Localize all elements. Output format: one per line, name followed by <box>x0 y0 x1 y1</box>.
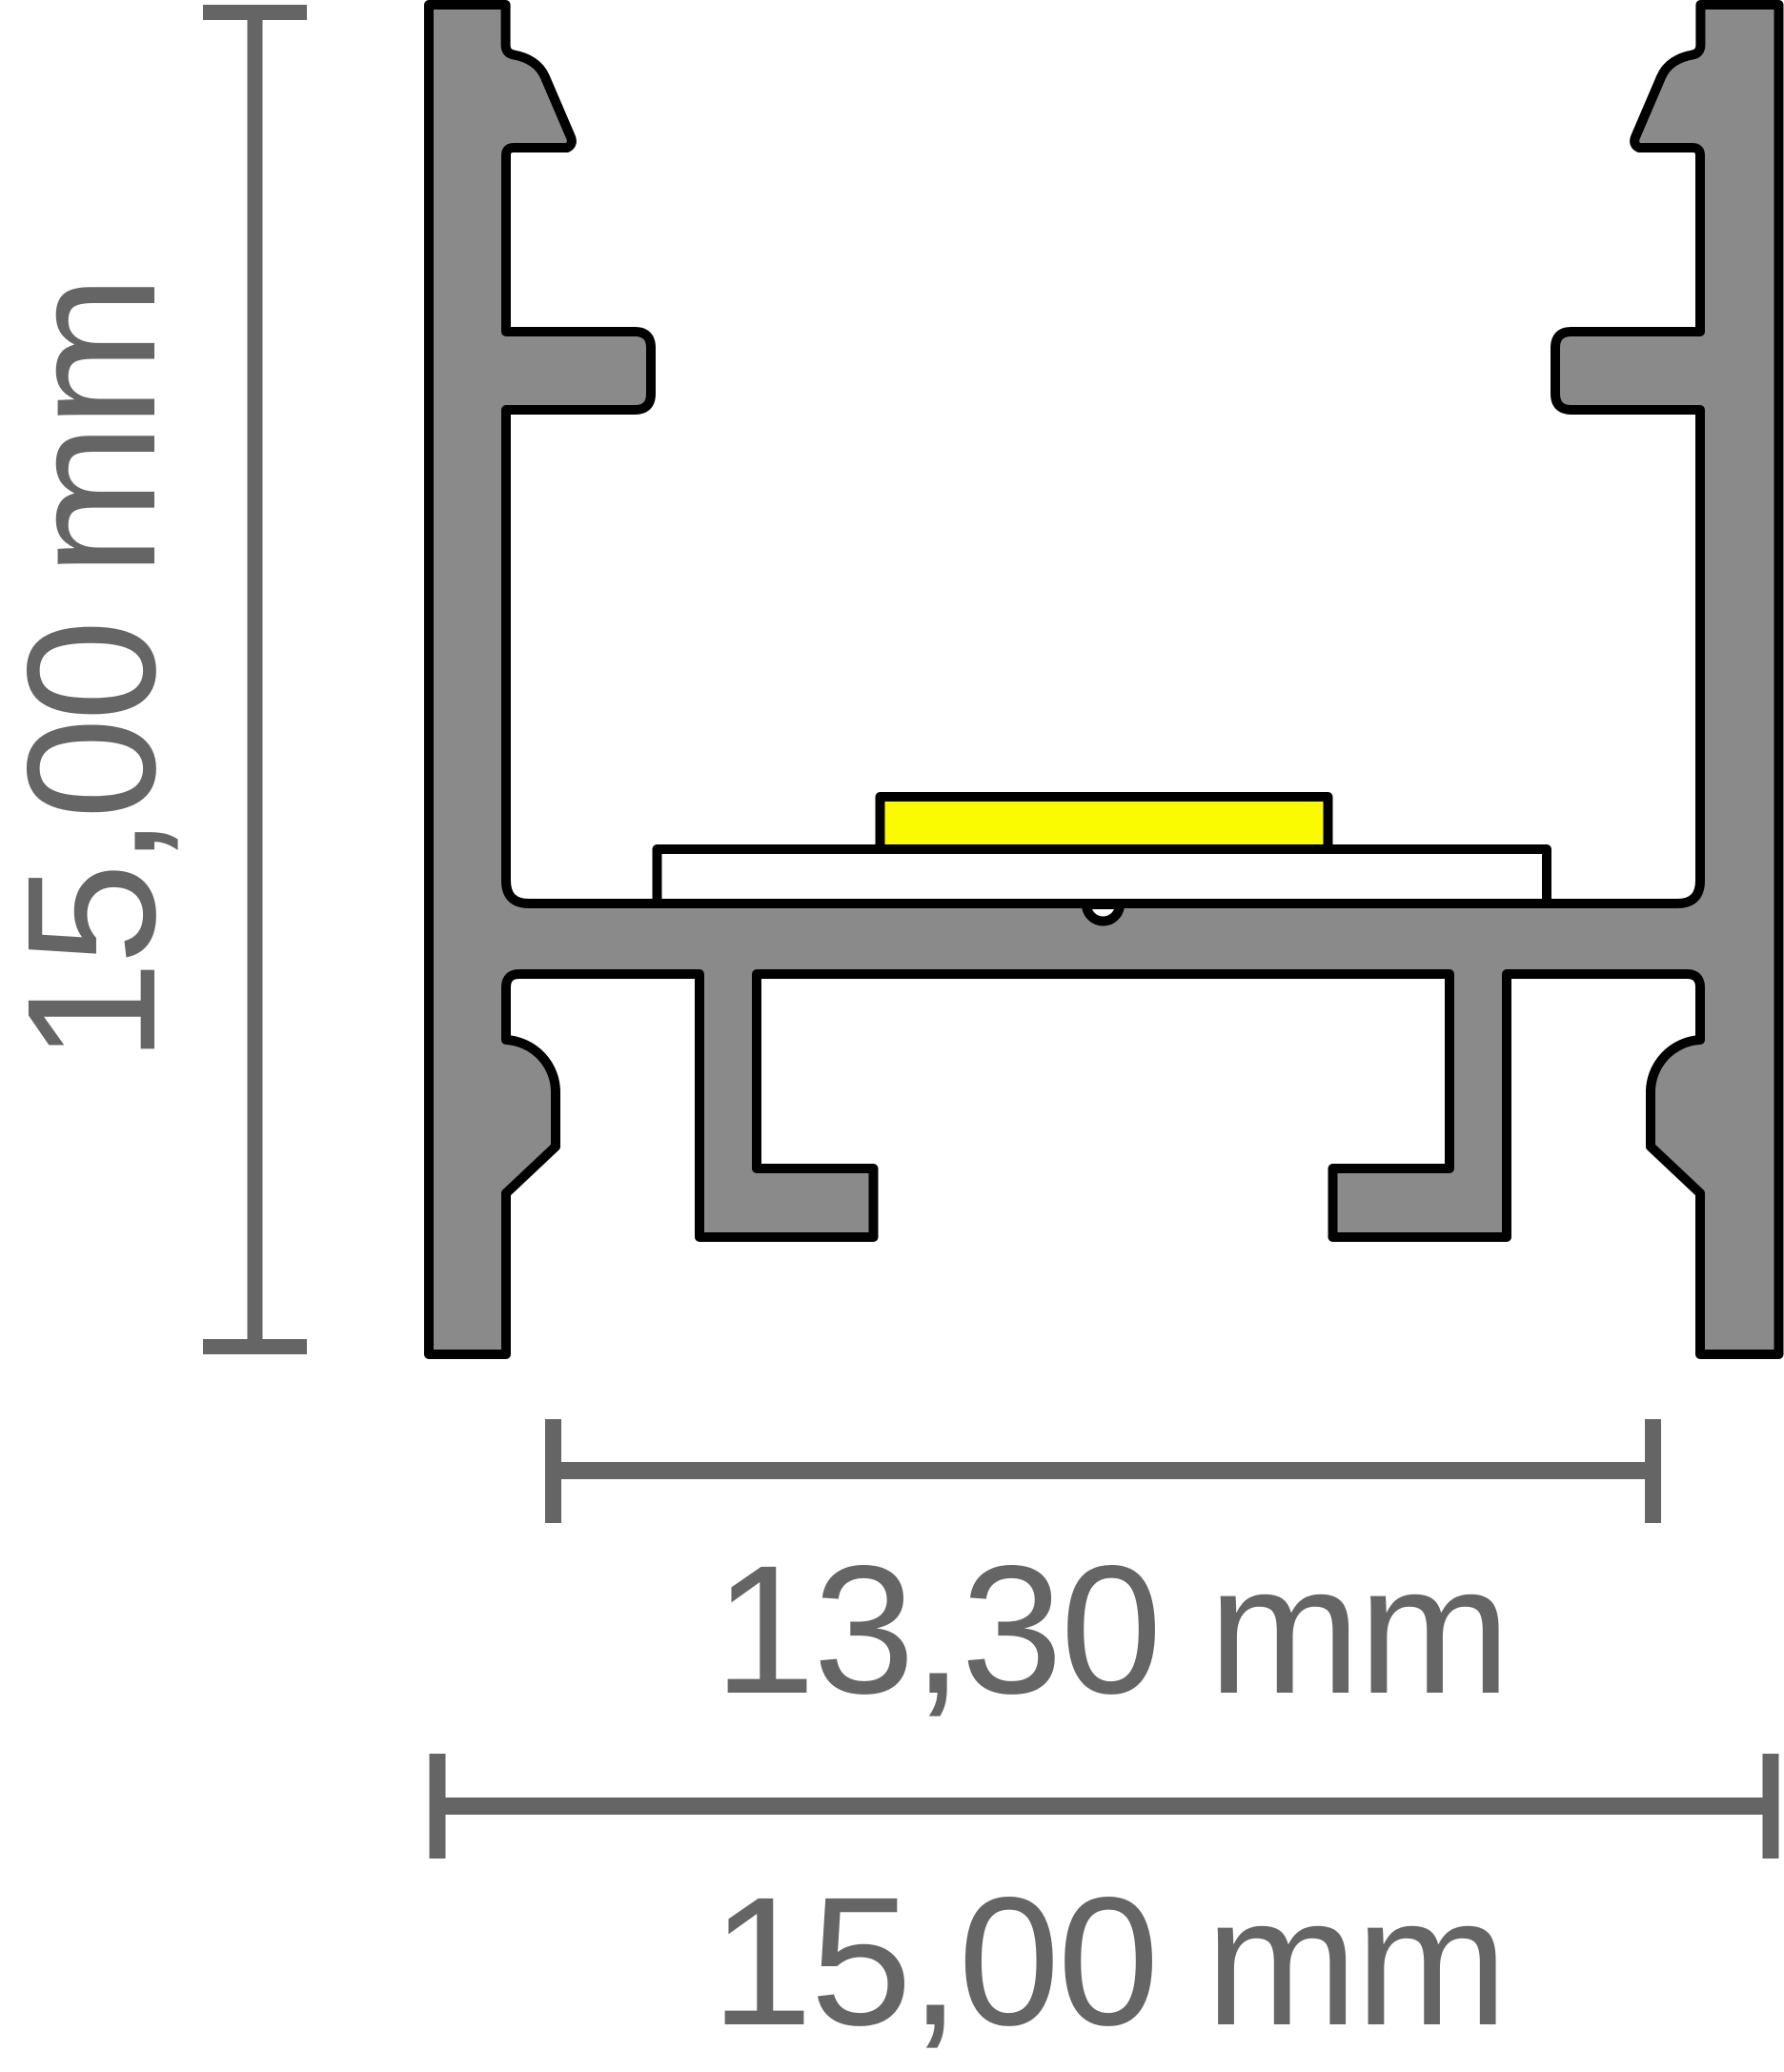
svg-text:15,00 mm: 15,00 mm <box>0 279 193 1064</box>
svg-text:15,00 mm: 15,00 mm <box>711 1859 1506 2063</box>
svg-text:13,30 mm: 13,30 mm <box>714 1527 1509 1732</box>
